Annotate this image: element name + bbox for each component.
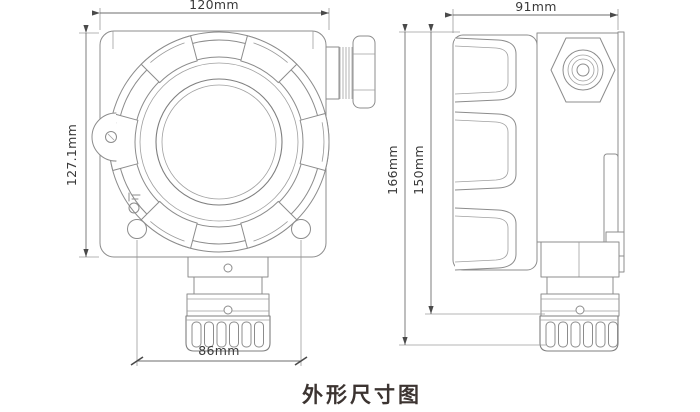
dimension-drawing-page: 120mm 127.1mm 86mm 91mm 166mm 150mm 外形尺寸… [0, 0, 700, 412]
set-screw-icon [224, 264, 232, 272]
dim-label-front-height: 127.1mm [64, 124, 79, 186]
front-lock-tab [92, 113, 117, 161]
front-cable-gland [326, 36, 375, 108]
front-view [92, 31, 375, 351]
side-view [453, 32, 624, 351]
dim-label-side-height-overall: 166mm [385, 145, 400, 195]
dimension-side-width: 91mm [453, 0, 618, 33]
dimension-hole-spacing: 86mm [131, 240, 307, 366]
side-grip-lugs [455, 38, 516, 270]
mounting-hole-left [128, 220, 147, 239]
dim-label-side-width: 91mm [515, 0, 556, 14]
dim-label-front-width: 120mm [189, 0, 239, 12]
dimension-front-width: 120mm [100, 0, 329, 30]
mounting-hole-right [292, 220, 311, 239]
dim-label-side-height-body: 150mm [411, 145, 426, 195]
front-sensor-assembly [186, 257, 270, 351]
outline-dimension-diagram: 120mm 127.1mm 86mm 91mm 166mm 150mm 外形尺寸… [0, 0, 700, 412]
drawing-caption: 外形尺寸图 [302, 383, 422, 407]
dim-label-hole-spacing: 86mm [198, 343, 239, 358]
side-sensor-assembly [540, 242, 619, 351]
